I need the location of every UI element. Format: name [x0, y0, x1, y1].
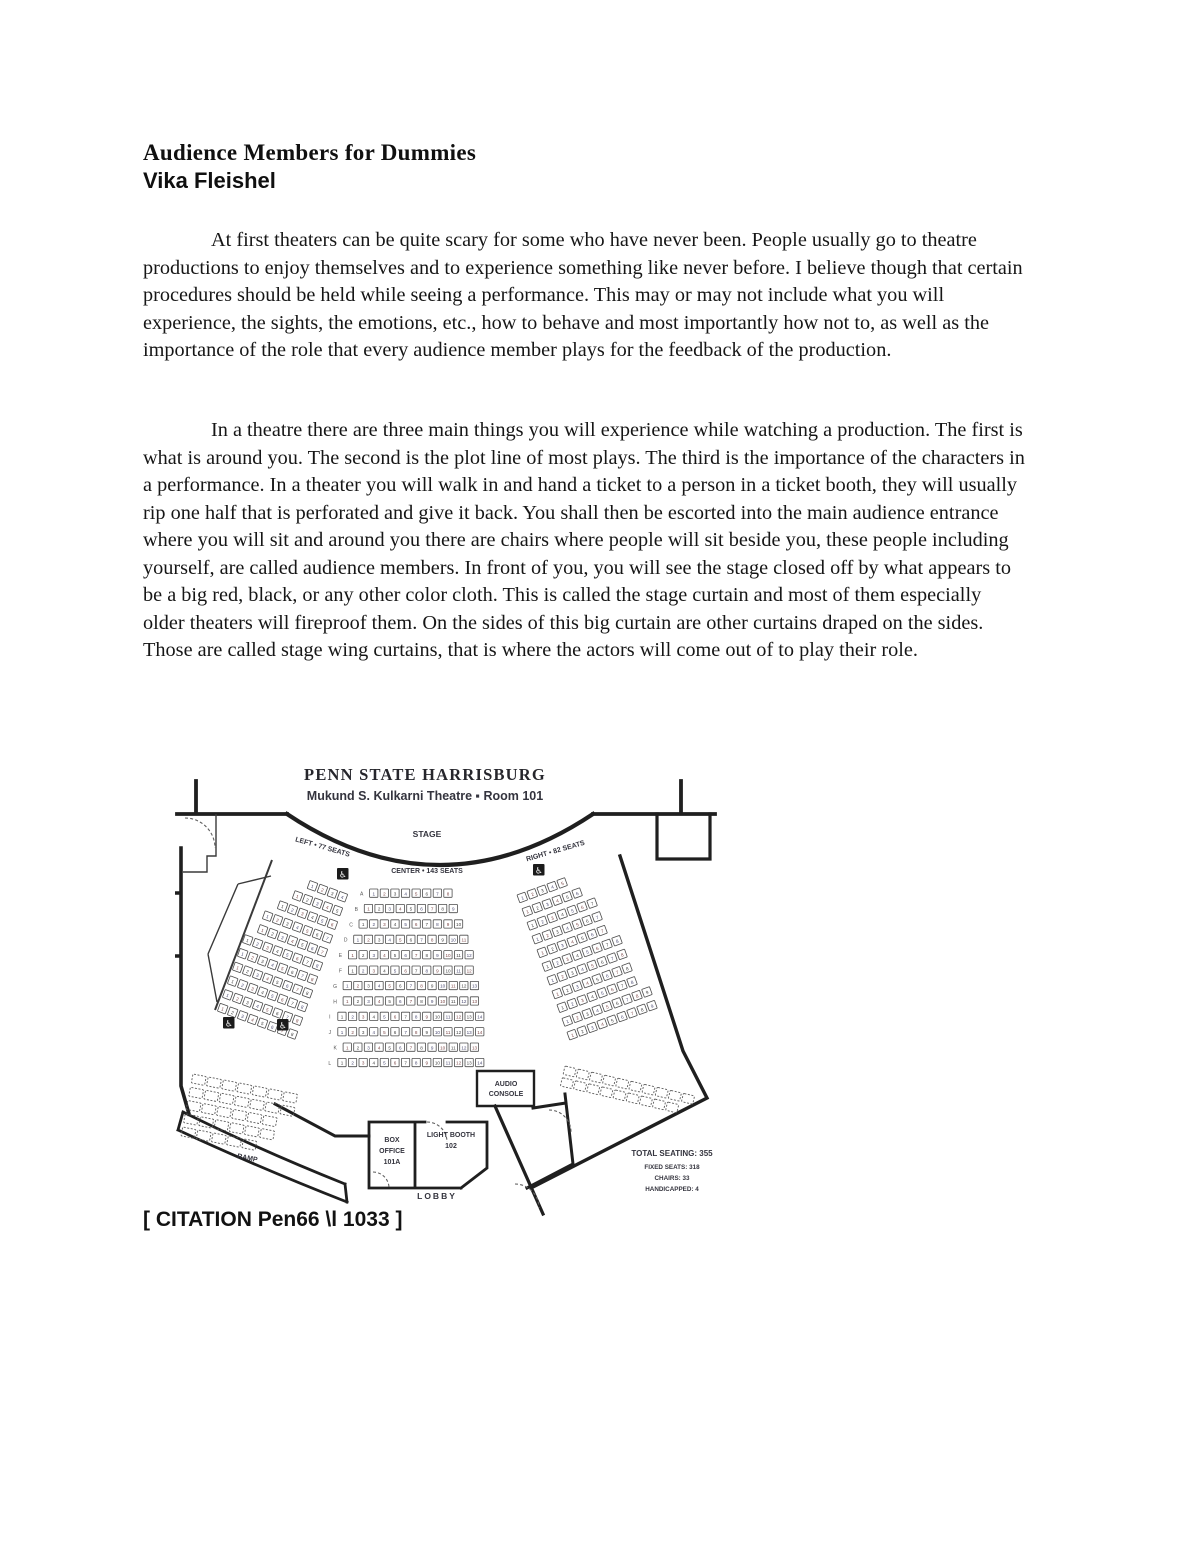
svg-text:1: 1	[362, 922, 365, 927]
svg-text:6: 6	[426, 891, 429, 896]
door-arc	[373, 1172, 389, 1188]
svg-text:1: 1	[346, 984, 349, 989]
svg-text:12: 12	[467, 968, 473, 973]
svg-text:12: 12	[461, 999, 467, 1004]
svg-text:3: 3	[367, 984, 370, 989]
svg-text:10: 10	[435, 1030, 441, 1035]
audio-console-label-2: CONSOLE	[489, 1091, 524, 1098]
right-chair-rows	[560, 1066, 694, 1116]
svg-text:D: D	[344, 938, 348, 944]
svg-text:1: 1	[357, 938, 360, 943]
svg-text:5: 5	[404, 922, 407, 927]
svg-text:13: 13	[467, 1015, 473, 1020]
svg-text:6: 6	[394, 1030, 397, 1035]
svg-text:1: 1	[367, 907, 370, 912]
center-section-label: CENTER • 143 SEATS	[391, 868, 463, 875]
svg-text:2: 2	[362, 953, 365, 958]
svg-text:8: 8	[420, 1045, 423, 1050]
svg-text:2: 2	[383, 891, 386, 896]
svg-text:13: 13	[472, 999, 478, 1004]
wheelchair-icon: ♿	[535, 866, 543, 876]
svg-text:8: 8	[420, 984, 423, 989]
svg-text:6: 6	[420, 907, 423, 912]
box-office-label-2: OFFICE	[379, 1148, 405, 1155]
stat-chairs: CHAIRS: 33	[655, 1175, 690, 1182]
svg-text:4: 4	[383, 968, 386, 973]
svg-text:11: 11	[451, 984, 456, 989]
svg-text:4: 4	[373, 1061, 376, 1066]
svg-text:10: 10	[440, 984, 446, 989]
document-title: Audience Members for Dummies	[143, 140, 1063, 166]
wheelchair-spot: ♿	[277, 1019, 289, 1031]
seating-stats: TOTAL SEATING: 355 FIXED SEATS: 318 CHAI…	[631, 1149, 713, 1193]
box-office-label-3: 101A	[384, 1159, 401, 1166]
svg-text:8: 8	[426, 968, 429, 973]
svg-text:14: 14	[477, 1061, 483, 1066]
svg-text:11: 11	[456, 968, 461, 973]
svg-text:9: 9	[441, 938, 444, 943]
svg-text:14: 14	[477, 1030, 483, 1035]
svg-text:6: 6	[399, 999, 402, 1004]
svg-text:5: 5	[394, 953, 397, 958]
svg-text:8: 8	[436, 922, 439, 927]
document-page: Audience Members for Dummies Vika Fleish…	[0, 0, 1200, 1553]
svg-text:3: 3	[367, 999, 370, 1004]
svg-text:9: 9	[436, 968, 439, 973]
svg-text:1: 1	[341, 1015, 344, 1020]
paragraph-2: In a theatre there are three main things…	[143, 417, 1027, 665]
svg-text:4: 4	[388, 938, 391, 943]
paragraph-1: At first theaters can be quite scary for…	[143, 227, 1027, 365]
document-author: Vika Fleishel	[143, 168, 1063, 193]
svg-text:12: 12	[456, 1015, 462, 1020]
svg-text:7: 7	[410, 1045, 413, 1050]
lower-left-wall	[275, 1104, 369, 1136]
lobby-wall	[495, 1106, 543, 1214]
svg-text:7: 7	[420, 938, 423, 943]
svg-text:2: 2	[357, 999, 360, 1004]
svg-text:10: 10	[435, 1015, 441, 1020]
svg-text:3: 3	[394, 891, 397, 896]
svg-text:2: 2	[373, 922, 376, 927]
citation-field: [ CITATION Pen66 \l 1033 ]	[143, 1208, 402, 1232]
svg-text:6: 6	[410, 938, 413, 943]
svg-text:11: 11	[462, 938, 467, 943]
svg-text:6: 6	[399, 1045, 402, 1050]
svg-text:6: 6	[399, 984, 402, 989]
wheelchair-spot: ♿	[337, 868, 349, 880]
svg-text:4: 4	[383, 953, 386, 958]
wheelchair-spot: ♿	[533, 864, 545, 876]
svg-text:2: 2	[357, 984, 360, 989]
svg-text:6: 6	[404, 968, 407, 973]
svg-text:4: 4	[378, 984, 381, 989]
svg-text:1: 1	[341, 1030, 344, 1035]
svg-text:12: 12	[461, 1045, 467, 1050]
svg-text:12: 12	[461, 984, 467, 989]
svg-text:1: 1	[341, 1061, 344, 1066]
svg-text:9: 9	[431, 999, 434, 1004]
svg-text:11: 11	[446, 1015, 451, 1020]
svg-text:3: 3	[373, 953, 376, 958]
wheelchair-icon: ♿	[339, 870, 347, 880]
svg-text:3: 3	[378, 938, 381, 943]
svg-text:8: 8	[420, 999, 423, 1004]
svg-text:4: 4	[373, 1015, 376, 1020]
svg-text:12: 12	[456, 1030, 462, 1035]
svg-text:E: E	[339, 953, 343, 959]
figure-title: PENN STATE HARRISBURG	[304, 765, 546, 784]
svg-text:1: 1	[346, 999, 349, 1004]
svg-text:10: 10	[445, 953, 451, 958]
center-seat-section: A12345678B123456789C12345678910D12345678…	[328, 889, 483, 1067]
svg-text:11: 11	[446, 1061, 451, 1066]
svg-text:10: 10	[440, 1045, 446, 1050]
svg-text:5: 5	[388, 999, 391, 1004]
rooms: AUDIO CONSOLE LIGHT BOOTH 102 BOX OFFICE…	[236, 1071, 534, 1201]
svg-text:9: 9	[436, 953, 439, 958]
svg-text:10: 10	[440, 999, 446, 1004]
svg-text:8: 8	[447, 891, 450, 896]
seating-chart-figure: PENN STATE HARRISBURG Mukund S. Kulkarni…	[175, 756, 720, 1218]
stat-handicap: HANDICAPPED: 4	[645, 1186, 699, 1193]
svg-text:2: 2	[351, 1015, 354, 1020]
svg-text:K: K	[333, 1046, 337, 1052]
svg-text:5: 5	[383, 1061, 386, 1066]
stage-label: STAGE	[413, 829, 442, 839]
svg-text:7: 7	[410, 984, 413, 989]
svg-text:7: 7	[410, 999, 413, 1004]
svg-text:9: 9	[447, 922, 450, 927]
svg-text:8: 8	[415, 1030, 418, 1035]
svg-text:5: 5	[394, 968, 397, 973]
svg-text:3: 3	[383, 922, 386, 927]
svg-text:5: 5	[383, 1030, 386, 1035]
svg-text:13: 13	[472, 984, 478, 989]
svg-text:7: 7	[415, 968, 418, 973]
svg-text:H: H	[333, 999, 337, 1005]
svg-text:2: 2	[367, 938, 370, 943]
svg-text:4: 4	[378, 999, 381, 1004]
svg-text:2: 2	[362, 968, 365, 973]
svg-text:A: A	[360, 892, 364, 898]
right-alcove-wall	[657, 814, 710, 859]
svg-text:9: 9	[431, 984, 434, 989]
svg-text:9: 9	[426, 1061, 429, 1066]
svg-text:5: 5	[399, 938, 402, 943]
svg-text:1: 1	[351, 968, 354, 973]
ramp-walls	[178, 1112, 347, 1202]
svg-text:2: 2	[351, 1061, 354, 1066]
svg-text:9: 9	[452, 907, 455, 912]
svg-text:5: 5	[410, 907, 413, 912]
seating-chart-svg: PENN STATE HARRISBURG Mukund S. Kulkarni…	[175, 756, 720, 1218]
svg-text:9: 9	[426, 1030, 429, 1035]
svg-text:L: L	[328, 1061, 331, 1067]
svg-text:B: B	[355, 907, 359, 913]
svg-text:2: 2	[378, 907, 381, 912]
left-step-wall	[183, 814, 216, 872]
svg-text:3: 3	[388, 907, 391, 912]
box-office-label-1: BOX	[384, 1137, 400, 1144]
light-booth-label-2: 102	[445, 1143, 457, 1150]
light-booth-label-1: LIGHT BOOTH	[427, 1132, 475, 1139]
svg-text:6: 6	[415, 922, 418, 927]
svg-text:1: 1	[351, 953, 354, 958]
svg-text:G: G	[333, 984, 337, 990]
svg-text:4: 4	[378, 1045, 381, 1050]
svg-text:8: 8	[431, 938, 434, 943]
svg-text:5: 5	[415, 891, 418, 896]
stat-fixed: FIXED SEATS: 318	[644, 1164, 700, 1171]
svg-text:14: 14	[477, 1015, 483, 1020]
figure-subtitle: Mukund S. Kulkarni Theatre ▪ Room 101	[307, 789, 543, 803]
svg-text:10: 10	[435, 1061, 441, 1066]
svg-text:1: 1	[346, 1045, 349, 1050]
svg-text:3: 3	[362, 1061, 365, 1066]
lobby-label: LOBBY	[417, 1191, 457, 1201]
wheelchair-spot: ♿	[223, 1017, 235, 1029]
svg-text:6: 6	[394, 1061, 397, 1066]
svg-text:F: F	[339, 969, 342, 975]
svg-text:12: 12	[456, 1061, 462, 1066]
svg-text:7: 7	[404, 1061, 407, 1066]
svg-text:11: 11	[446, 1030, 451, 1035]
svg-text:8: 8	[426, 953, 429, 958]
svg-text:4: 4	[373, 1030, 376, 1035]
svg-text:4: 4	[404, 891, 407, 896]
stat-total: TOTAL SEATING: 355	[631, 1149, 713, 1158]
svg-text:2: 2	[357, 1045, 360, 1050]
svg-text:8: 8	[415, 1015, 418, 1020]
svg-text:3: 3	[362, 1030, 365, 1035]
svg-text:6: 6	[404, 953, 407, 958]
svg-text:12: 12	[467, 953, 473, 958]
svg-text:7: 7	[404, 1015, 407, 1020]
svg-text:10: 10	[456, 922, 462, 927]
svg-text:11: 11	[451, 999, 456, 1004]
svg-text:10: 10	[451, 938, 457, 943]
right-wall	[531, 856, 707, 1188]
svg-text:3: 3	[373, 968, 376, 973]
svg-text:9: 9	[426, 1015, 429, 1020]
svg-text:9: 9	[431, 1045, 434, 1050]
svg-text:5: 5	[383, 1015, 386, 1020]
svg-text:J: J	[329, 1030, 332, 1036]
svg-text:3: 3	[367, 1045, 370, 1050]
right-seat-section: 1234512345612345671234567123456712345678…	[517, 863, 657, 1040]
door-arc	[185, 818, 215, 848]
audio-console-box	[477, 1071, 534, 1106]
vestibule-walls	[527, 1094, 573, 1188]
svg-text:10: 10	[445, 968, 451, 973]
svg-text:5: 5	[388, 1045, 391, 1050]
svg-text:4: 4	[399, 907, 402, 912]
left-wall	[175, 848, 189, 1114]
svg-text:13: 13	[467, 1061, 473, 1066]
svg-text:11: 11	[451, 1045, 456, 1050]
svg-text:C: C	[349, 922, 353, 928]
svg-text:7: 7	[415, 953, 418, 958]
svg-text:7: 7	[426, 922, 429, 927]
svg-text:8: 8	[441, 907, 444, 912]
svg-text:I: I	[329, 1015, 330, 1021]
svg-text:5: 5	[388, 984, 391, 989]
svg-text:3: 3	[362, 1015, 365, 1020]
svg-text:13: 13	[467, 1030, 473, 1035]
left-section-label: LEFT • 77 SEATS	[294, 836, 350, 858]
svg-text:8: 8	[415, 1061, 418, 1066]
wheelchair-icon: ♿	[225, 1019, 233, 1029]
svg-text:4: 4	[394, 922, 397, 927]
svg-text:7: 7	[436, 891, 439, 896]
left-chair-rows	[181, 1074, 298, 1156]
svg-text:7: 7	[404, 1030, 407, 1035]
svg-text:7: 7	[431, 907, 434, 912]
svg-text:2: 2	[351, 1030, 354, 1035]
svg-text:1: 1	[373, 891, 376, 896]
svg-text:6: 6	[394, 1015, 397, 1020]
svg-text:11: 11	[456, 953, 461, 958]
wheelchair-icon: ♿	[279, 1021, 287, 1031]
svg-text:13: 13	[472, 1045, 478, 1050]
audio-console-label-1: AUDIO	[495, 1081, 518, 1088]
